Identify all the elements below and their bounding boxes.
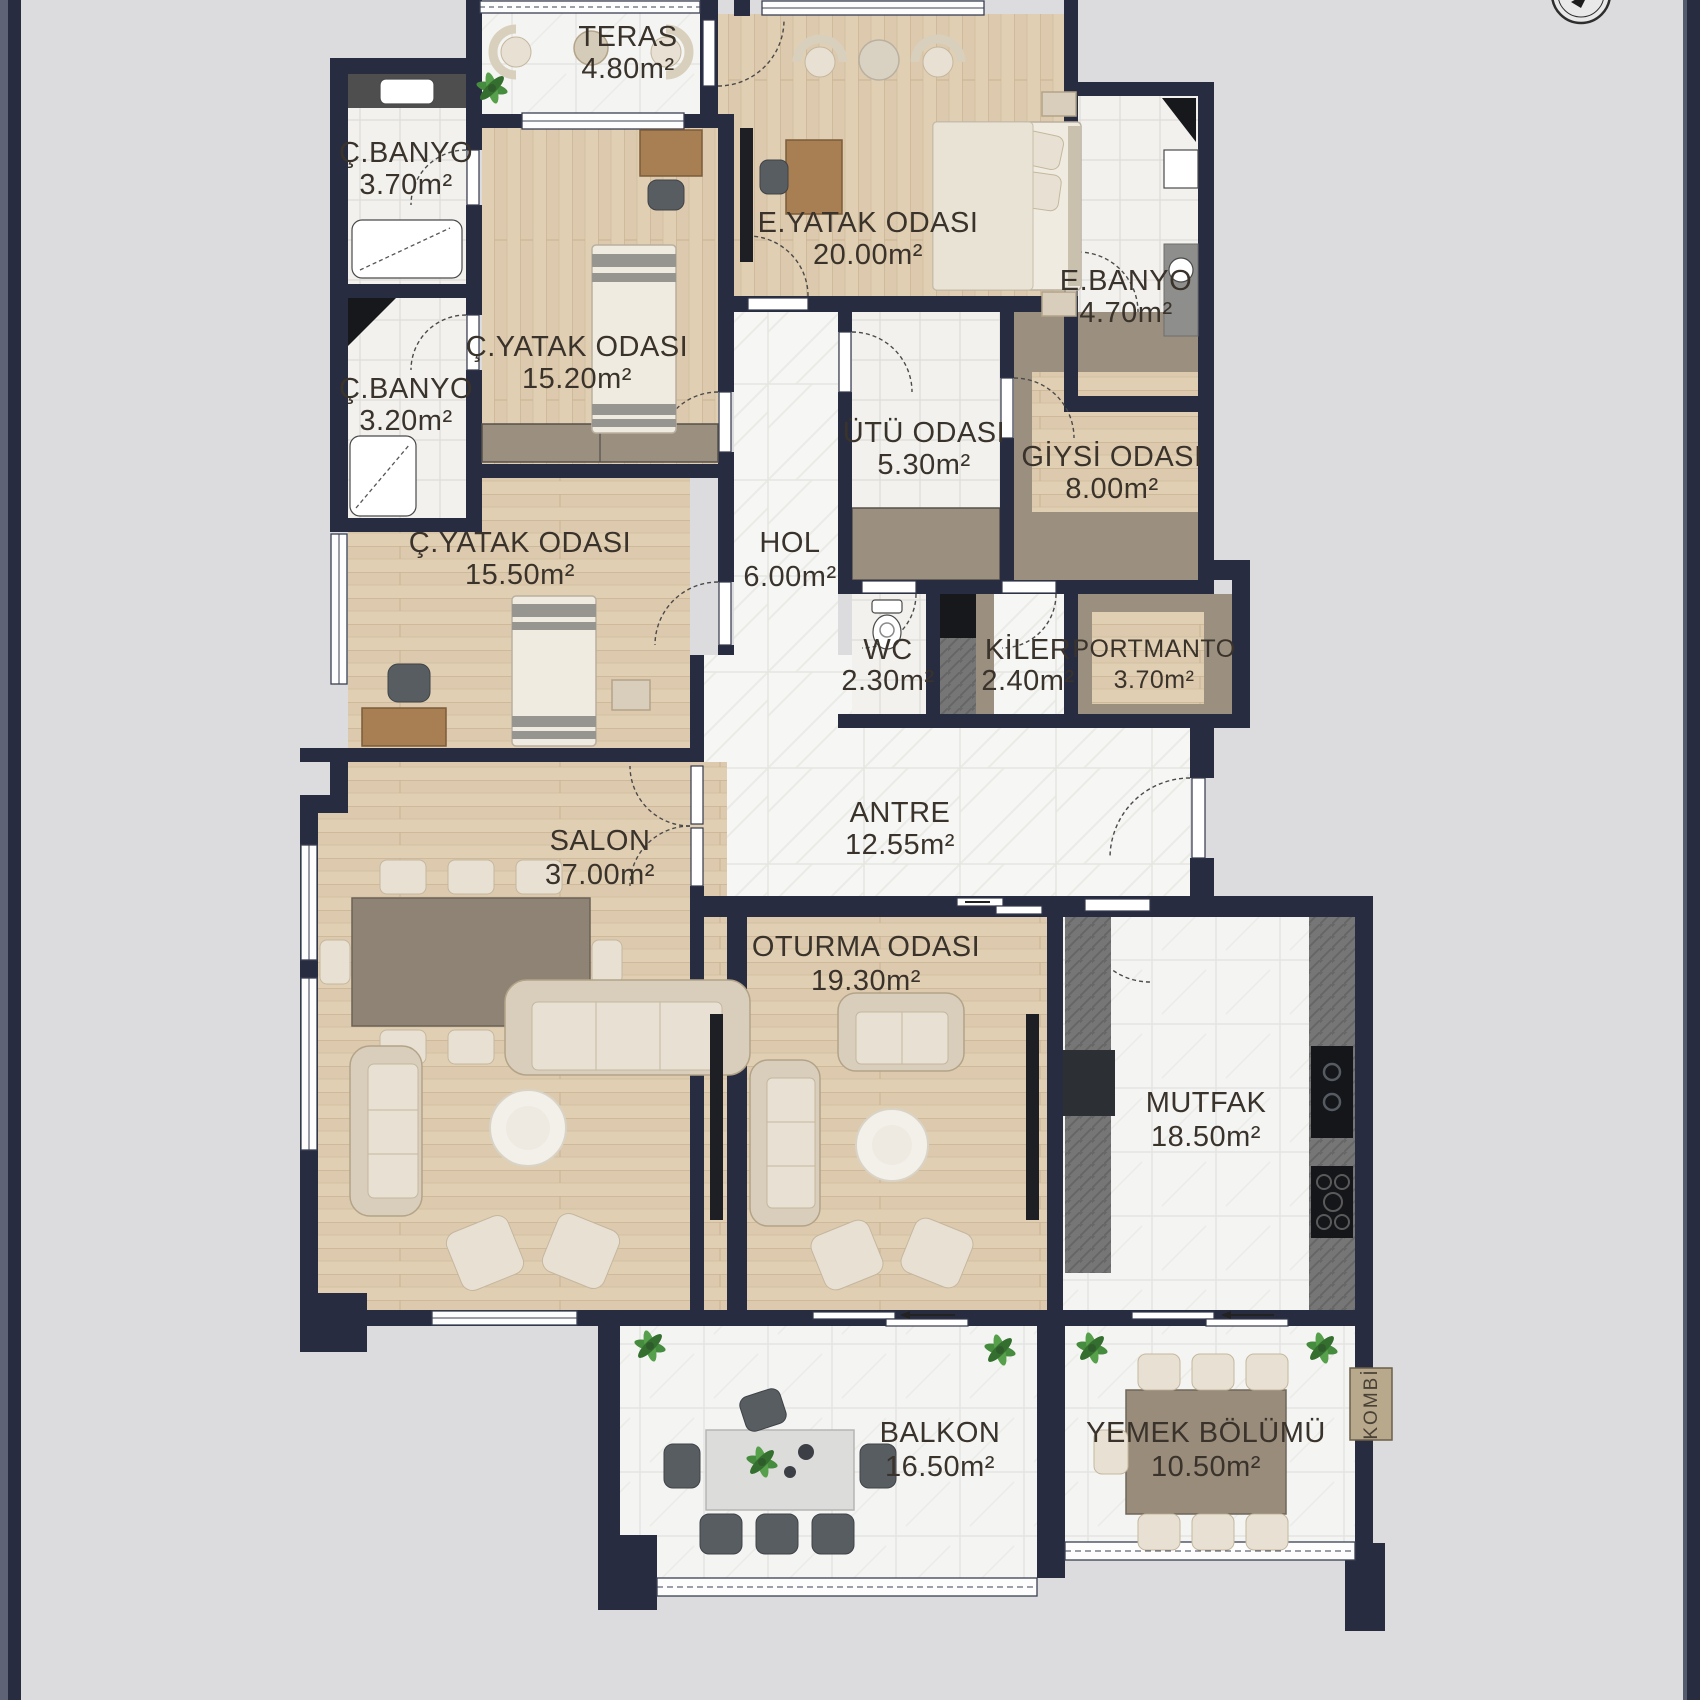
dining-chair bbox=[1192, 1354, 1234, 1390]
sink bbox=[380, 79, 434, 104]
shaft-wedge bbox=[940, 594, 976, 638]
sofa-vertical bbox=[750, 1060, 820, 1226]
label-eyatak-name: E.YATAK ODASI bbox=[758, 207, 979, 239]
right-edge-bar-dark bbox=[1687, 0, 1700, 1700]
window-salon-left-1 bbox=[301, 845, 317, 960]
floor-salon-strip bbox=[318, 813, 330, 1310]
label-utu-area: 5.30m² bbox=[877, 449, 970, 481]
dining-chair bbox=[1246, 1354, 1288, 1390]
window-salon-bottom bbox=[432, 1311, 577, 1325]
window-cyatak2 bbox=[331, 534, 347, 684]
desk bbox=[362, 708, 446, 746]
stove bbox=[1311, 1166, 1353, 1238]
right-edge-bar bbox=[1683, 0, 1687, 1700]
balcony-table bbox=[706, 1430, 854, 1510]
dining-chair bbox=[320, 940, 350, 984]
label-cyatak1-name: Ç.YATAK ODASI bbox=[466, 331, 688, 363]
label-cbanyo1-area: 3.70m² bbox=[359, 169, 452, 201]
left-edge-bar-dark bbox=[8, 0, 21, 1700]
shower-tray bbox=[352, 220, 462, 278]
sofa-vertical bbox=[350, 1046, 422, 1216]
label-oturma-name: OTURMA ODASI bbox=[752, 931, 980, 963]
label-cbanyo2-name: Ç.BANYO bbox=[339, 373, 473, 405]
dining-chair bbox=[1138, 1514, 1180, 1550]
dining-chair bbox=[380, 860, 426, 894]
balcony-chair bbox=[756, 1514, 798, 1554]
teras-railing bbox=[480, 1, 700, 13]
sink-unit bbox=[1311, 1046, 1353, 1138]
dining-chair bbox=[1138, 1354, 1180, 1390]
single-bed bbox=[512, 596, 596, 746]
floor-plan-svg: TERAS 4.80m² Ç.BANYO 3.70m² Ç.BANYO 3.20… bbox=[0, 0, 1700, 1700]
balkon-railing bbox=[657, 1578, 1037, 1596]
tv-unit bbox=[740, 128, 753, 262]
label-teras-name: TERAS bbox=[578, 21, 677, 53]
left-edge-bar bbox=[0, 0, 8, 1700]
desk bbox=[640, 130, 702, 176]
sofa-two-seat bbox=[838, 993, 964, 1071]
desk bbox=[786, 140, 842, 214]
label-mutfak-name: MUTFAK bbox=[1146, 1087, 1267, 1119]
round-table bbox=[859, 40, 899, 80]
label-antre-area: 12.55m² bbox=[845, 829, 955, 861]
label-giysi-area: 8.00m² bbox=[1065, 473, 1158, 505]
cabinet-utu bbox=[852, 508, 1000, 580]
label-oturma-area: 19.30m² bbox=[811, 965, 921, 997]
kitchen-appliance bbox=[1063, 1050, 1115, 1116]
label-cyatak1-area: 15.20m² bbox=[522, 363, 632, 395]
north-arrow-icon bbox=[1552, 0, 1610, 23]
toilet-tank bbox=[872, 600, 902, 613]
label-kiler-area: 2.40m² bbox=[981, 665, 1074, 697]
label-yemek-name: YEMEK BÖLÜMÜ bbox=[1086, 1417, 1326, 1449]
window-cyatak1 bbox=[522, 113, 684, 129]
desk-chair bbox=[760, 160, 788, 194]
balcony-chair bbox=[700, 1514, 742, 1554]
nightstand bbox=[612, 680, 650, 710]
desk-chair bbox=[388, 664, 430, 702]
dining-chair bbox=[448, 860, 494, 894]
label-cbanyo1-name: Ç.BANYO bbox=[339, 137, 473, 169]
floor-plan-canvas: TERAS 4.80m² Ç.BANYO 3.70m² Ç.BANYO 3.20… bbox=[0, 0, 1700, 1700]
label-giysi-name: GİYSİ ODASI bbox=[1021, 440, 1202, 473]
window-eyatak bbox=[762, 1, 984, 15]
label-salon-area: 37.00m² bbox=[545, 859, 655, 891]
balcony-chair bbox=[664, 1444, 700, 1488]
label-eyatak-area: 20.00m² bbox=[813, 239, 923, 271]
tv-unit bbox=[710, 1014, 723, 1220]
label-portmanto-area: 3.70m² bbox=[1114, 666, 1195, 694]
dining-chair bbox=[592, 940, 622, 984]
label-yemek-area: 10.50m² bbox=[1151, 1451, 1261, 1483]
floor-cyatak2-notch bbox=[480, 478, 690, 532]
window-salon-left-2 bbox=[301, 978, 317, 1150]
label-cyatak2-area: 15.50m² bbox=[465, 559, 575, 591]
label-kiler-name: KİLER bbox=[985, 633, 1071, 666]
label-wc-area: 2.30m² bbox=[841, 665, 934, 697]
label-utu-name: ÜTÜ ODASI bbox=[843, 417, 1005, 449]
washer bbox=[1164, 150, 1198, 188]
label-ebanyo-area: 4.70m² bbox=[1079, 297, 1172, 329]
label-cbanyo2-area: 3.20m² bbox=[359, 405, 452, 437]
label-portmanto-name: PORTMANTO bbox=[1072, 635, 1235, 663]
balcony-chair bbox=[812, 1514, 854, 1554]
label-hol-name: HOL bbox=[759, 527, 820, 559]
label-wc-name: WC bbox=[863, 634, 912, 666]
nightstand bbox=[1042, 92, 1076, 116]
dining-chair bbox=[448, 1030, 494, 1064]
floor-hol bbox=[734, 312, 838, 655]
label-antre-name: ANTRE bbox=[850, 797, 951, 829]
label-ebanyo-name: E.BANYO bbox=[1060, 265, 1192, 297]
shaft-floor bbox=[940, 638, 976, 714]
dining-chair bbox=[1192, 1514, 1234, 1550]
desk-chair bbox=[648, 180, 684, 210]
label-teras-area: 4.80m² bbox=[581, 53, 674, 85]
label-cyatak2-name: Ç.YATAK ODASI bbox=[409, 527, 631, 559]
label-salon-name: SALON bbox=[550, 825, 651, 857]
label-kombi: KOMBİ bbox=[1361, 1368, 1382, 1439]
label-balkon-name: BALKON bbox=[880, 1417, 1001, 1449]
dining-chair bbox=[1246, 1514, 1288, 1550]
tv-unit bbox=[1026, 1014, 1039, 1220]
label-hol-area: 6.00m² bbox=[743, 561, 836, 593]
label-mutfak-area: 18.50m² bbox=[1151, 1121, 1261, 1153]
label-balkon-area: 16.50m² bbox=[885, 1451, 995, 1483]
